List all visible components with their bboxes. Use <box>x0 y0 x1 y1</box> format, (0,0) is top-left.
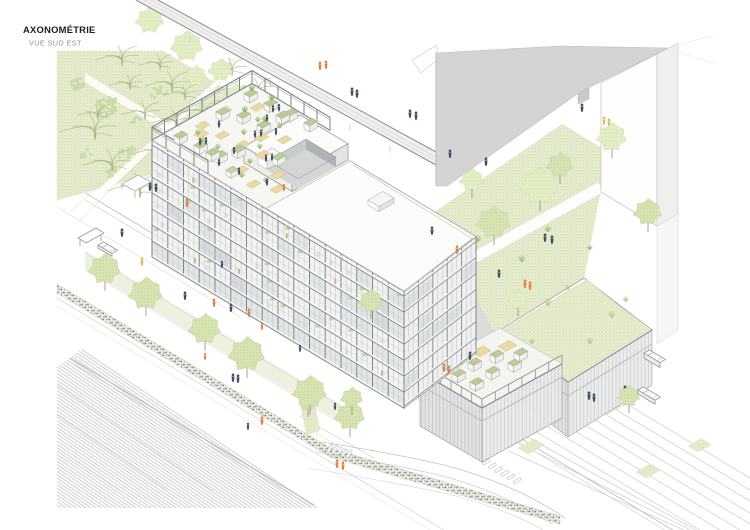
svg-text:AXONOMÉTRIE: AXONOMÉTRIE <box>23 24 96 35</box>
svg-text:VUE SUD EST: VUE SUD EST <box>29 39 82 48</box>
